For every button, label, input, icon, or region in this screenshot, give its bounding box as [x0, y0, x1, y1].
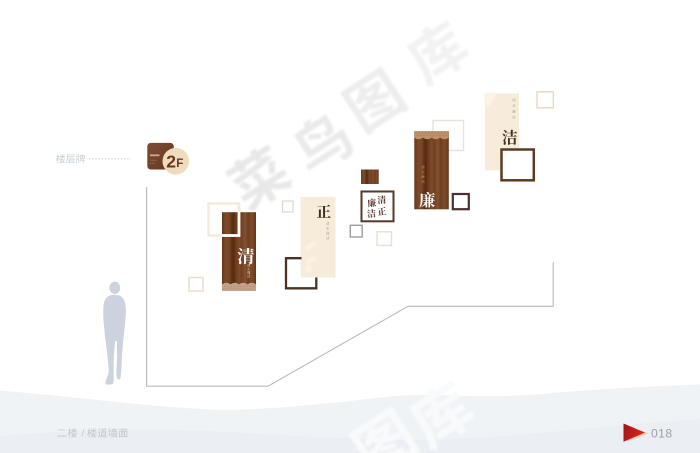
svg-text:/: /	[82, 428, 85, 440]
svg-text:018: 018	[651, 426, 673, 440]
svg-text:2: 2	[166, 151, 176, 171]
svg-text:F: F	[176, 158, 183, 170]
